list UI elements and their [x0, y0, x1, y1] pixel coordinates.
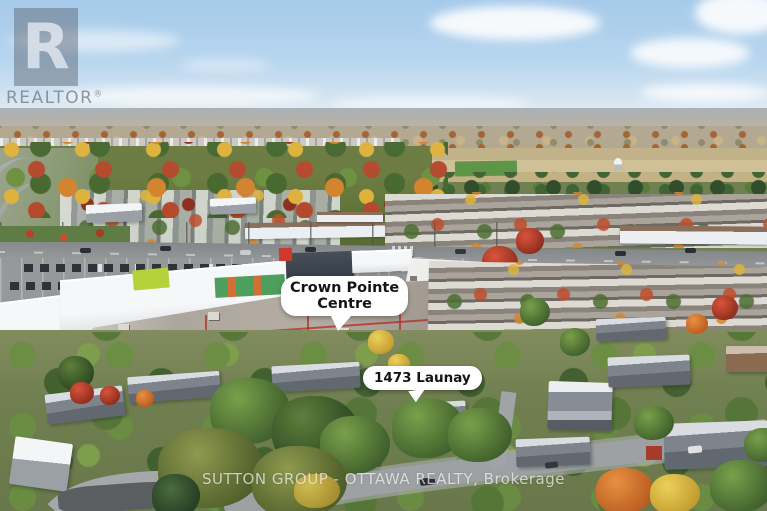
label-pointer: [331, 316, 351, 331]
car: [688, 445, 703, 453]
house: [608, 355, 691, 388]
realtor-logo-letter: R: [22, 16, 70, 78]
aerial-photo: Crown Pointe Centre 1473 Launay R REALTO…: [0, 0, 767, 511]
map-label-1473-launay: 1473 Launay: [363, 366, 482, 390]
house: [86, 203, 143, 223]
label-pointer: [408, 389, 427, 403]
house: [210, 197, 257, 215]
map-label-crown-pointe-centre: Crown Pointe Centre: [281, 276, 408, 316]
realtor-text: REALTOR: [6, 88, 93, 108]
brokerage-watermark: SUTTON GROUP - OTTAWA REALTY, Brokerage: [0, 470, 767, 488]
house: [547, 381, 613, 431]
house: [726, 346, 767, 372]
house: [271, 362, 360, 393]
registered-trademark-icon: ®: [93, 89, 102, 99]
label-line-1: Crown Pointe: [290, 280, 399, 296]
realtor-logo-icon: R: [14, 8, 78, 86]
red-shed: [646, 446, 662, 460]
tree: [744, 428, 767, 462]
house: [596, 317, 667, 341]
realtor-wordmark: REALTOR®: [6, 88, 102, 108]
label-text: 1473 Launay: [374, 370, 471, 386]
label-line-2: Centre: [290, 296, 399, 312]
